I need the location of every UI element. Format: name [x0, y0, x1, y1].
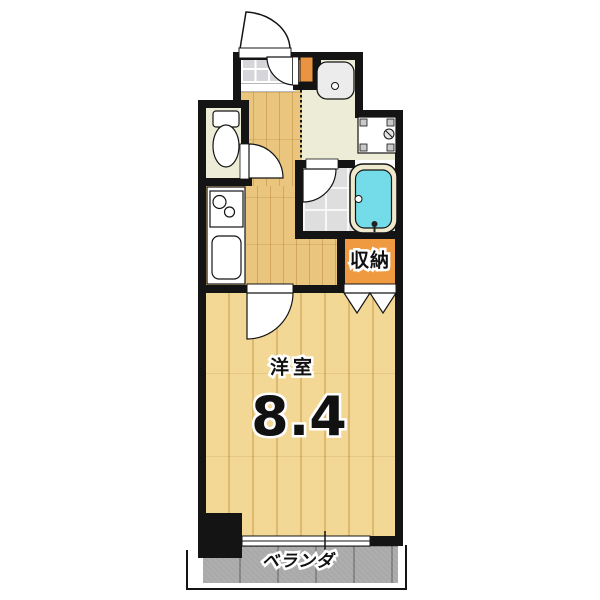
shoe-cabinet — [300, 57, 313, 82]
floor-plan: 洋室洋室 8.48.4 収納収納 ベランダベランダ — [0, 0, 600, 600]
main-room-label: 洋室洋室 — [270, 359, 316, 378]
bathtub-handle — [355, 196, 362, 203]
fixtures-layer — [0, 0, 600, 600]
pan-corner — [360, 144, 367, 151]
kitchen-sink — [212, 236, 241, 279]
main-room-door — [247, 293, 293, 339]
main-room-door-opening — [247, 284, 293, 293]
washbasin-faucet — [332, 83, 339, 90]
stove-burner — [225, 207, 235, 217]
entry-door — [240, 12, 290, 49]
toilet-door-opening — [240, 144, 249, 179]
washbasin — [317, 62, 354, 99]
folding-closet-door — [370, 293, 396, 313]
main-room-size: 8.48.4 — [251, 390, 347, 444]
pan-corner — [360, 119, 367, 126]
bathroom-door-opening — [306, 159, 338, 169]
toilet-door — [249, 144, 283, 178]
folding-closet-door — [344, 293, 370, 313]
pan-corner — [387, 144, 394, 151]
storage-label: 収納収納 — [350, 252, 390, 271]
stove-burner — [213, 196, 226, 209]
pan-corner — [387, 119, 394, 126]
entrance-inner-door — [267, 57, 295, 85]
bathroom-door — [303, 169, 336, 202]
balcony-label: ベランダベランダ — [262, 554, 334, 571]
toilet-bowl — [213, 125, 239, 167]
folding-door-opening — [344, 284, 396, 293]
entrance-inner-door-leaf — [293, 57, 299, 85]
